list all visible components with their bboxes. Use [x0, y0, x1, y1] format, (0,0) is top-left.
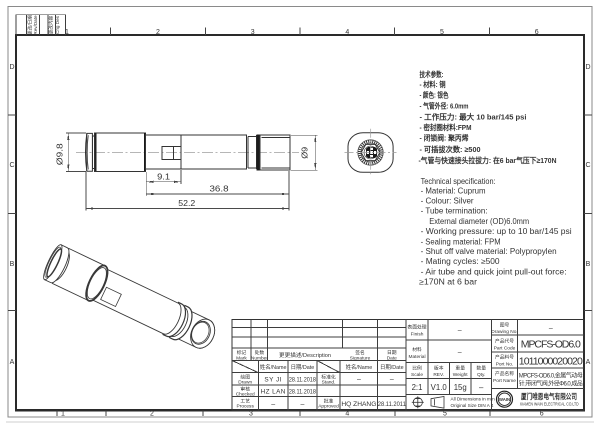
svg-text:D: D [585, 64, 590, 71]
svg-text:更改内容: 更改内容 [47, 15, 54, 34]
svg-text:52.2: 52.2 [178, 199, 195, 208]
svg-text:6: 6 [535, 29, 539, 36]
svg-text:C: C [585, 162, 590, 169]
svg-text:- Air tube and quick joint pul: - Air tube and quick joint pull-out forc… [421, 267, 567, 276]
svg-text:–: – [390, 377, 394, 384]
svg-text:图号: 图号 [500, 323, 510, 329]
svg-text:B: B [10, 261, 15, 268]
svg-text:XIAMEN WAIN ELECTRICAL CO.LTD: XIAMEN WAIN ELECTRICAL CO.LTD [520, 402, 579, 407]
svg-text:SY JI: SY JI [264, 377, 282, 384]
svg-text:Qty.: Qty. [477, 372, 485, 378]
svg-text:Drawn: Drawn [238, 379, 252, 385]
svg-text:B: B [586, 261, 591, 268]
svg-text:MPCFS-OD6.0,金属气动母: MPCFS-OD6.0,金属气动母 [519, 371, 583, 379]
svg-text:- 气管外径: 6.0mm: - 气管外径: 6.0mm [420, 101, 469, 111]
svg-text:28.11.2011: 28.11.2011 [378, 401, 407, 408]
svg-text:Port Name: Port Name [493, 378, 516, 384]
svg-text:厦门唯恩电气有限公司: 厦门唯恩电气有限公司 [521, 391, 577, 401]
svg-text:-气管与快速接头拉拔力: 在6 bar气压下≥170N: -气管与快速接头拉拔力: 在6 bar气压下≥170N [419, 155, 557, 165]
svg-text:版本: 版本 [434, 364, 444, 371]
svg-text:姓名/Name: 姓名/Name [260, 363, 287, 371]
svg-text:- Tube termination:: - Tube termination: [421, 207, 488, 216]
svg-text:HQ ZHANG: HQ ZHANG [341, 401, 376, 408]
svg-text:External diameter (OD)6.0mm: External diameter (OD)6.0mm [429, 217, 529, 226]
svg-text:- 材料: 铜: - 材料: 铜 [420, 79, 446, 89]
svg-text:- Material: Cuprum: - Material: Cuprum [421, 187, 486, 196]
svg-text:批准: 批准 [324, 397, 334, 404]
svg-text:Process: Process [237, 403, 255, 409]
svg-text:6: 6 [540, 410, 544, 417]
svg-text:C: C [9, 162, 14, 169]
svg-text:–: – [271, 401, 275, 408]
svg-text:9.1: 9.1 [157, 173, 170, 182]
svg-text:Weight: Weight [453, 372, 469, 378]
svg-text:5: 5 [440, 29, 444, 36]
svg-text:Approved: Approved [318, 403, 339, 409]
svg-text:- 工作压力: 最大 10 bar/145 psi: - 工作压力: 最大 10 bar/145 psi [420, 112, 527, 122]
svg-text:2:1: 2:1 [412, 383, 423, 392]
svg-text:标记: 标记 [237, 349, 247, 356]
svg-text:表面处理: 表面处理 [407, 324, 426, 331]
svg-text:28.11.2018: 28.11.2018 [289, 389, 316, 396]
svg-text:Rev/Date: Rev/Date [33, 15, 38, 35]
svg-text:日期/Date: 日期/Date [380, 364, 404, 371]
svg-text:产品名称: 产品名称 [495, 370, 514, 377]
svg-text:工艺: 工艺 [240, 398, 250, 404]
svg-text:4: 4 [345, 410, 349, 417]
svg-text:4: 4 [345, 29, 349, 36]
svg-text:日期/Date: 日期/Date [291, 364, 315, 371]
svg-text:审核: 审核 [240, 385, 250, 392]
svg-text:36.8: 36.8 [210, 185, 230, 194]
svg-text:比例: 比例 [412, 364, 422, 371]
svg-text:技术参数:: 技术参数: [420, 69, 444, 79]
svg-text:–: – [357, 377, 361, 384]
svg-text:- Sealing material: FPM: - Sealing material: FPM [421, 237, 501, 246]
svg-text:- 密封圈材料:FPM: - 密封圈材料:FPM [420, 122, 472, 132]
svg-text:Port No.: Port No. [496, 361, 514, 367]
svg-text:≥170N at 6 bar: ≥170N at 6 bar [419, 277, 477, 286]
svg-text:Part Code: Part Code [494, 345, 516, 351]
svg-text:–: – [458, 349, 462, 356]
svg-text:- 闭锁阀: 聚丙烯: - 闭锁阀: 聚丙烯 [420, 133, 469, 143]
svg-text:签名: 签名 [355, 349, 365, 356]
svg-text:Chg Des: Chg Des [55, 15, 60, 34]
svg-text:REV.: REV. [433, 372, 444, 378]
svg-text:日期: 日期 [387, 350, 397, 356]
svg-text:15g: 15g [454, 383, 467, 392]
svg-text:绘图: 绘图 [240, 373, 250, 380]
svg-text:V1.0: V1.0 [431, 383, 448, 392]
svg-text:更更描述/Description: 更更描述/Description [279, 351, 331, 359]
svg-text:–: – [549, 325, 553, 332]
svg-text:Technical specification:: Technical specification: [421, 177, 496, 186]
svg-text:MPCFS-OD6.0: MPCFS-OD6.0 [521, 339, 581, 351]
svg-text:Signature: Signature [350, 355, 371, 361]
svg-text:–: – [458, 328, 462, 335]
svg-text:数量: 数量 [476, 364, 486, 371]
svg-text:处数: 处数 [255, 349, 265, 356]
svg-text:- Shut off valve material: Pol: - Shut off valve material: Polypropylen [421, 247, 557, 256]
svg-text:5: 5 [443, 410, 447, 417]
svg-text:- 可插拔次数: ≥500: - 可插拔次数: ≥500 [420, 144, 481, 154]
svg-text:标准化: 标准化 [321, 373, 336, 380]
svg-text:- Mating cycles: ≥500: - Mating cycles: ≥500 [421, 257, 501, 266]
svg-text:2: 2 [150, 410, 154, 417]
svg-text:材料: 材料 [412, 346, 422, 353]
svg-text:Date: Date [387, 355, 397, 361]
svg-text:D: D [9, 64, 14, 71]
svg-text:Checked: Checked [236, 391, 255, 397]
svg-text:针,带闭气阀,外径Φ6.0,成品: 针,带闭气阀,外径Φ6.0,成品 [519, 380, 583, 388]
svg-text:姓名/Name: 姓名/Name [346, 363, 373, 371]
svg-text:Number: Number [251, 355, 268, 361]
svg-text:重量: 重量 [455, 364, 465, 371]
svg-text:Scale: Scale [411, 372, 423, 378]
svg-text:WAIN: WAIN [499, 397, 510, 402]
svg-text:–: – [300, 401, 304, 408]
svg-text:3: 3 [251, 29, 255, 36]
svg-text:A: A [10, 359, 15, 366]
svg-text:1011000020020: 1011000020020 [519, 356, 583, 368]
svg-text:Ø9.8: Ø9.8 [55, 143, 64, 166]
svg-text:Material: Material [408, 354, 425, 360]
svg-text:Ø9: Ø9 [301, 146, 310, 158]
svg-text:–: – [479, 383, 484, 392]
svg-text:Drawing No.: Drawing No. [491, 329, 517, 335]
svg-text:- 颜色: 银色: - 颜色: 银色 [420, 89, 449, 99]
svg-text:28.11.2018: 28.11.2018 [289, 377, 316, 384]
svg-text:All Dimensions in mm: All Dimensions in mm [451, 396, 495, 401]
svg-text:A: A [586, 359, 591, 366]
svg-text:Stand.: Stand. [322, 379, 336, 385]
svg-text:产品代号: 产品代号 [495, 337, 514, 344]
svg-text:3: 3 [249, 410, 253, 417]
svg-text:Original Size DIN A 4: Original Size DIN A 4 [451, 403, 494, 408]
svg-text:1: 1 [61, 410, 65, 417]
svg-text:HZ LAN: HZ LAN [261, 389, 286, 396]
svg-text:- Colour: Silver: - Colour: Silver [421, 197, 474, 206]
svg-text:产品料号: 产品料号 [495, 353, 514, 360]
svg-text:- Working pressure: up to 10 b: - Working pressure: up to 10 bar/145 psi [421, 227, 572, 236]
svg-text:Mark: Mark [236, 355, 247, 361]
svg-text:2: 2 [156, 29, 160, 36]
svg-text:Finish: Finish [411, 332, 424, 338]
